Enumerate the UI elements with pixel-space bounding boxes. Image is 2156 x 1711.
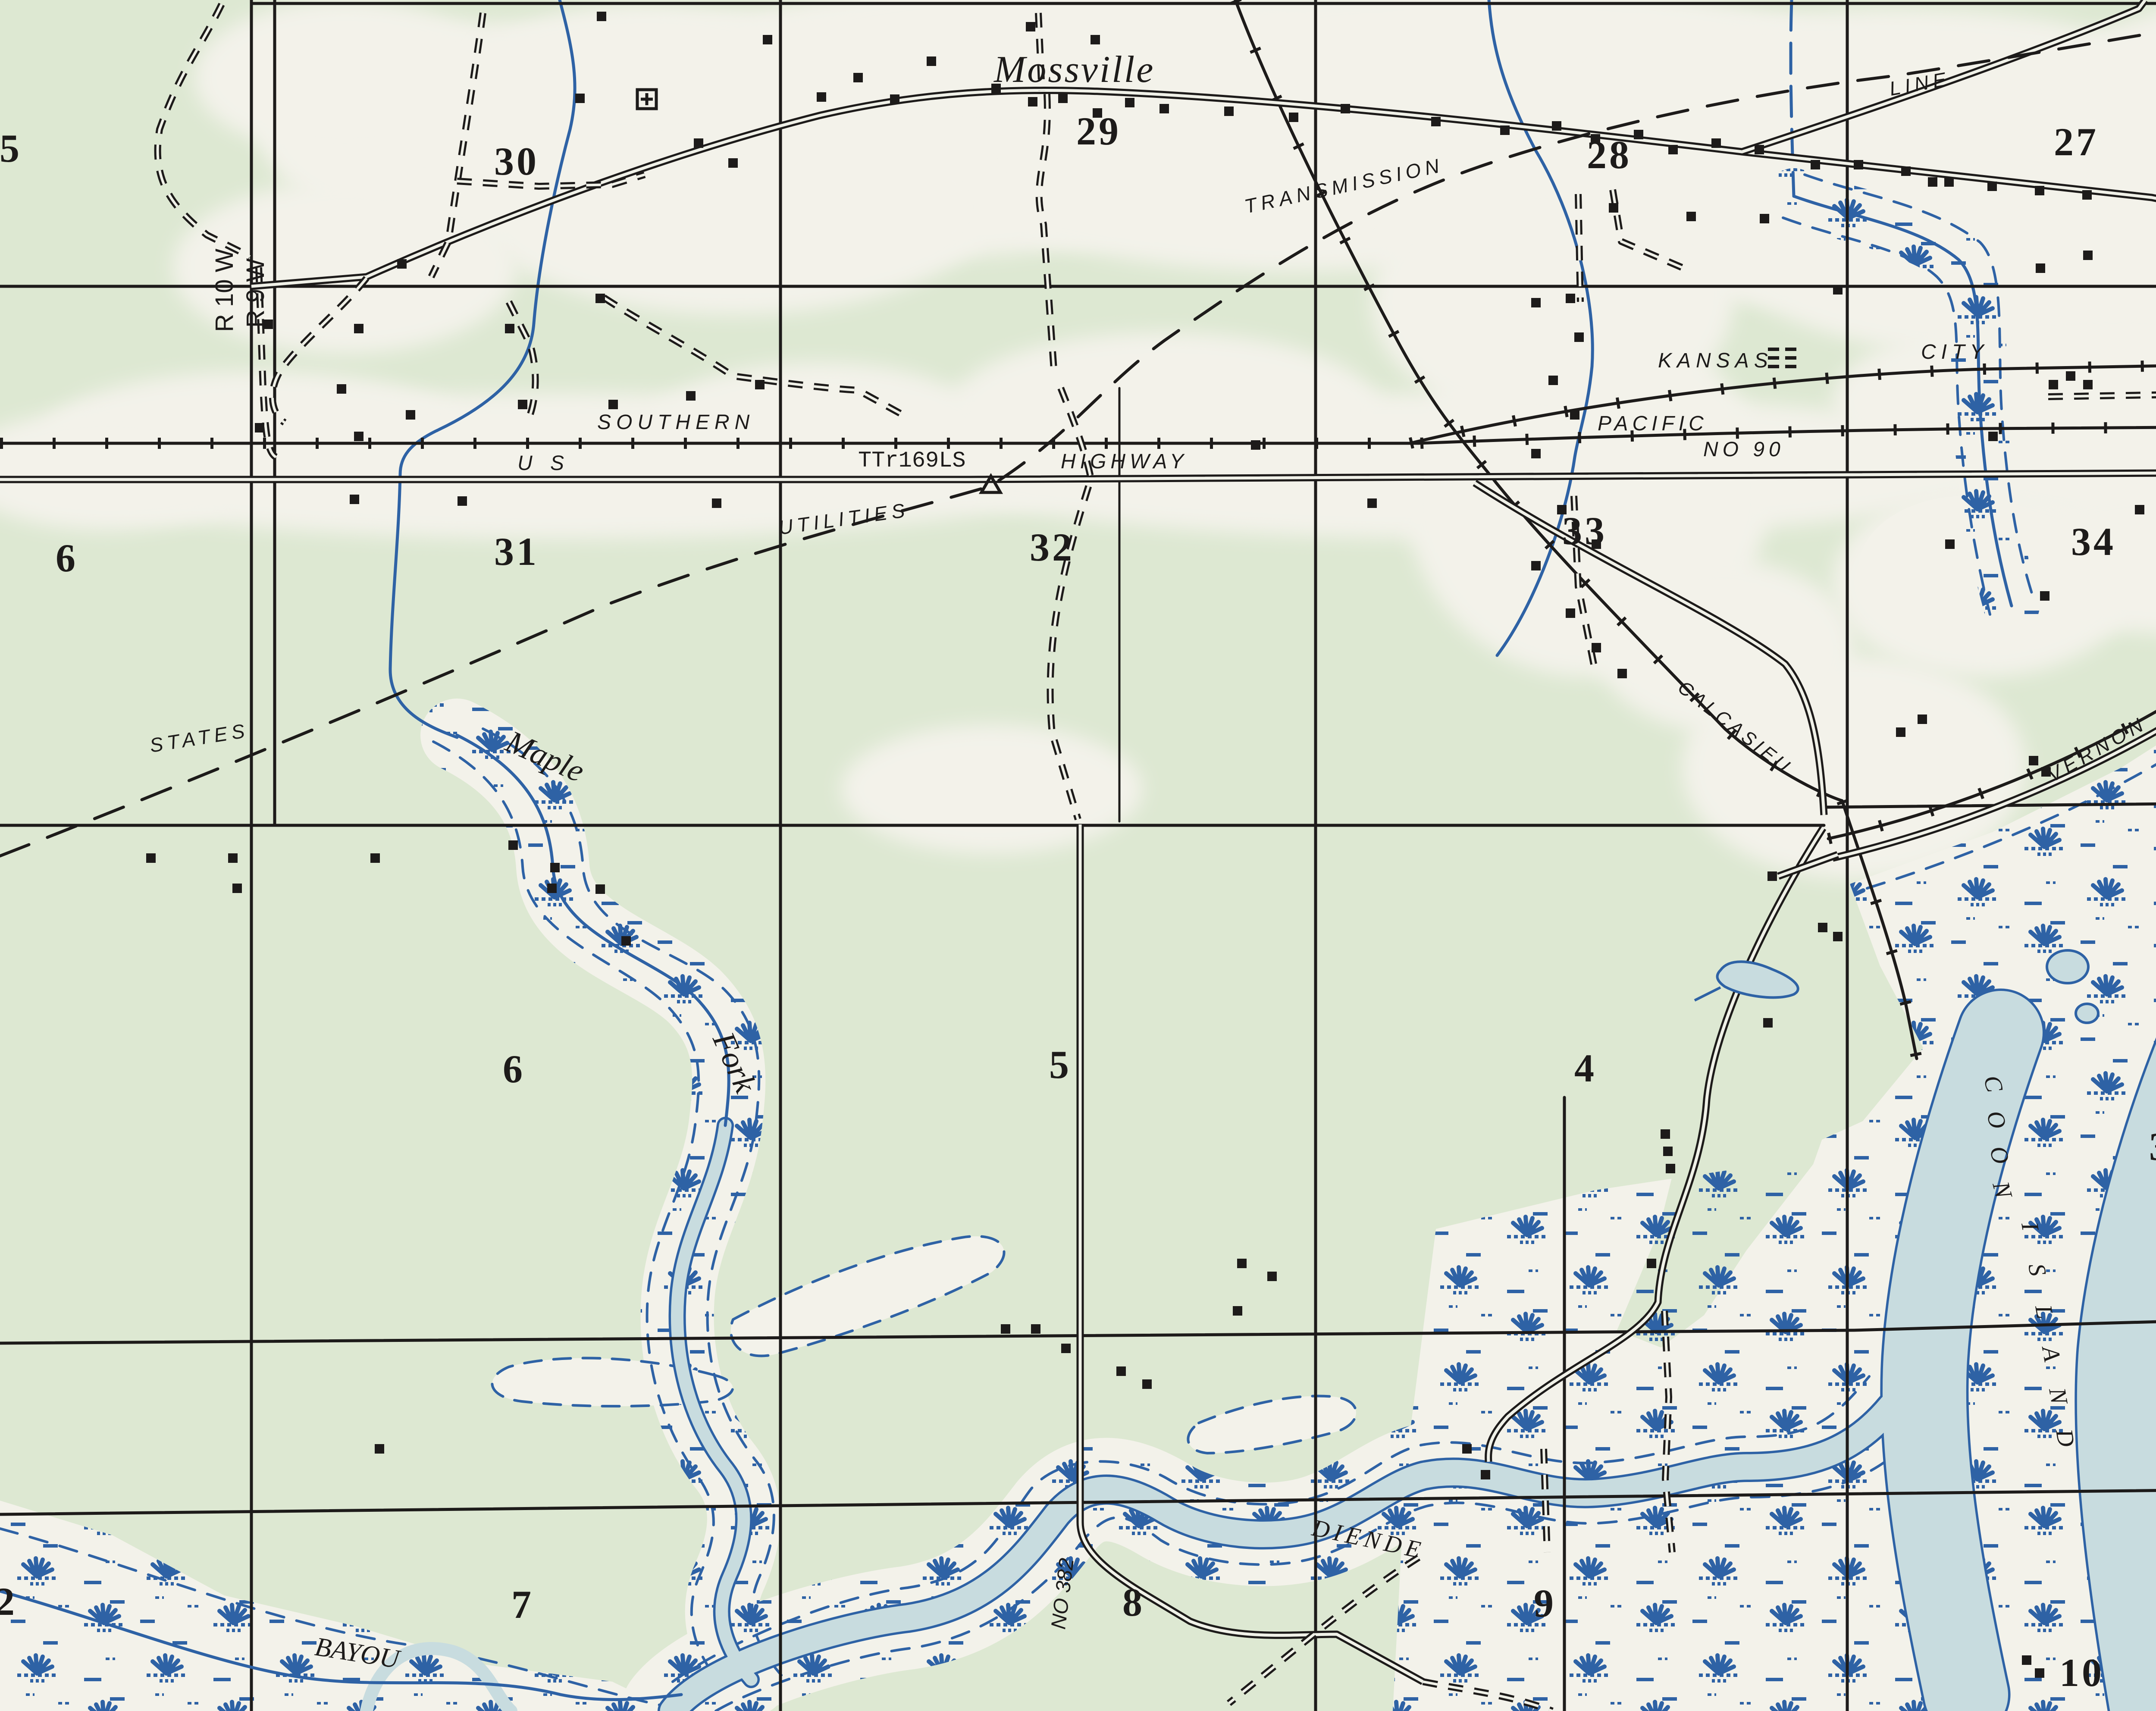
- svg-text:7: 7: [511, 1583, 534, 1626]
- svg-text:4: 4: [1574, 1046, 1597, 1090]
- svg-text:3: 3: [2149, 1125, 2156, 1169]
- svg-text:32: 32: [1030, 525, 1075, 569]
- svg-text:NO 90: NO 90: [1703, 438, 1785, 461]
- svg-text:34: 34: [2071, 520, 2116, 564]
- svg-text:R 9 W: R 9 W: [241, 258, 269, 328]
- svg-text:8: 8: [1122, 1580, 1145, 1624]
- svg-text:28: 28: [1587, 133, 1632, 177]
- svg-text:6: 6: [503, 1047, 525, 1091]
- svg-text:6: 6: [56, 536, 78, 580]
- svg-text:30: 30: [494, 139, 539, 183]
- svg-text:HIGHWAY: HIGHWAY: [1061, 450, 1188, 473]
- svg-text:CITY: CITY: [1921, 341, 1989, 364]
- svg-text:U S: U S: [517, 452, 570, 475]
- svg-text:Mossville: Mossville: [993, 49, 1155, 91]
- svg-text:9: 9: [1534, 1581, 1556, 1625]
- svg-text:33: 33: [1562, 509, 1607, 553]
- svg-text:PACIFIC: PACIFIC: [1598, 412, 1708, 435]
- svg-text:31: 31: [494, 530, 539, 573]
- svg-text:29: 29: [1076, 109, 1121, 153]
- svg-text:5: 5: [0, 126, 22, 170]
- svg-text:SOUTHERN: SOUTHERN: [597, 411, 755, 434]
- svg-text:R 10 W: R 10 W: [210, 248, 238, 332]
- svg-text:5: 5: [1049, 1043, 1072, 1087]
- svg-text:2: 2: [0, 1579, 17, 1623]
- svg-text:TTr169LS: TTr169LS: [858, 448, 966, 473]
- svg-text:27: 27: [2054, 120, 2099, 164]
- svg-text:KANSAS: KANSAS: [1658, 349, 1773, 372]
- svg-text:10: 10: [2059, 1651, 2104, 1695]
